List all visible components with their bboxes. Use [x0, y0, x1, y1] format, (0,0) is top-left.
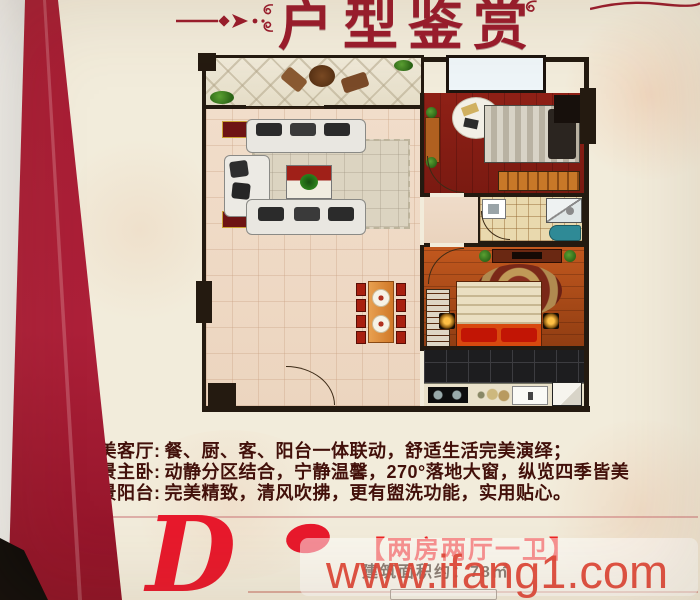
kitchen-tile-floor	[424, 350, 584, 383]
master-plant	[479, 250, 491, 262]
bedroom2-wardrobe	[554, 95, 580, 123]
dining-chair	[396, 331, 406, 344]
dining-chair	[356, 315, 366, 328]
wall	[464, 193, 588, 197]
spiral-flourish-icon	[522, 0, 540, 16]
nightstand-lamp	[543, 313, 559, 329]
wall	[464, 243, 482, 247]
master-bed-blanket	[457, 282, 541, 324]
dining-chair	[356, 299, 366, 312]
tv-on-cabinet	[512, 252, 542, 259]
feature-text: 餐、厨、客、阳台一体联动，舒适生活完美演绎；	[165, 441, 572, 461]
sofa-cushion	[256, 123, 282, 136]
wall	[202, 406, 590, 412]
master-bed	[456, 281, 542, 347]
refrigerator	[552, 382, 582, 406]
balcony-plant	[394, 60, 413, 71]
sofa-cushion	[229, 160, 249, 178]
corner-flourish-icon	[590, 0, 700, 14]
structural-column	[198, 53, 216, 71]
master-bed-pillow	[501, 328, 537, 342]
marble-texture-blob	[70, 120, 210, 340]
wall	[424, 243, 430, 247]
structural-column	[196, 281, 212, 323]
spiral-flourish-icon	[260, 2, 276, 18]
poster-photo: 户型鉴赏	[0, 0, 700, 600]
bedroom2-window	[446, 55, 546, 93]
feature-line: 阔景主卧:动静分区结合，宁静温馨，270°落地大窗，纵览四季皆美	[80, 462, 629, 483]
feature-text: 动静分区结合，宁静温馨，270°落地大窗，纵览四季皆美	[165, 462, 630, 482]
master-bed-pillow	[461, 328, 497, 342]
sofa-cushion	[231, 182, 251, 200]
wall	[424, 193, 430, 197]
sofa-cushion	[328, 207, 354, 221]
nightstand-lamp	[439, 313, 455, 329]
sofa-cushion	[258, 207, 284, 221]
dining-chair	[396, 283, 406, 296]
balcony-table	[309, 65, 335, 87]
shower-drain	[566, 207, 574, 215]
dining-chair	[396, 315, 406, 328]
coffee-table-plant	[300, 174, 318, 190]
site-watermark: www.ifang1.com	[326, 544, 668, 599]
sofa-cushion	[324, 123, 350, 136]
dinner-plate	[372, 315, 390, 333]
counter-prep-items	[476, 388, 510, 402]
feature-line: 华美客厅:餐、厨、客、阳台一体联动，舒适生活完美演绎；	[80, 441, 629, 462]
structural-column	[208, 383, 236, 409]
dash-arrow-flourish-icon	[176, 10, 268, 32]
dining-chair	[356, 331, 366, 344]
balcony-plant	[210, 91, 234, 104]
footer-small-box	[390, 589, 497, 600]
bedroom2-dresser	[498, 171, 580, 191]
poster-title: 户型鉴赏	[278, 0, 538, 60]
floorplan-rendering	[196, 55, 596, 417]
wall	[324, 105, 424, 109]
wall	[202, 105, 246, 109]
wall	[420, 93, 424, 197]
dining-chair	[396, 299, 406, 312]
stove-cooktop	[428, 387, 468, 403]
spiral-flourish-icon	[260, 18, 276, 34]
master-plant	[564, 250, 576, 262]
hallway-floor	[424, 197, 478, 243]
structural-column	[580, 88, 596, 144]
wall	[420, 245, 424, 351]
sofa-cushion	[290, 123, 316, 136]
shower-area	[546, 198, 582, 223]
dinner-plate	[372, 289, 390, 307]
bedroom2-plant	[426, 107, 437, 118]
wall	[424, 346, 588, 350]
dining-chair	[356, 283, 366, 296]
kitchen-faucet	[528, 392, 533, 400]
balcony-sliding-door-sill	[246, 107, 324, 109]
toilet	[549, 225, 581, 241]
sofa-cushion	[294, 207, 320, 221]
wall	[478, 243, 588, 247]
unit-type-letter: D	[146, 503, 236, 600]
